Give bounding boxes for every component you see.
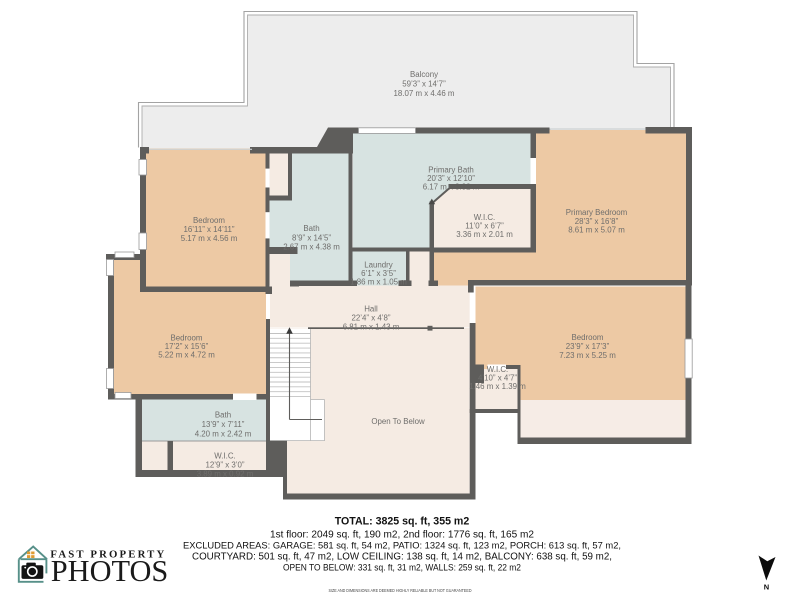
svg-text:59’3” x 14’7”: 59’3” x 14’7” — [402, 80, 446, 89]
svg-text:1.86 m x 1.05 m: 1.86 m x 1.05 m — [350, 278, 407, 287]
svg-text:8.61 m x 5.07 m: 8.61 m x 5.07 m — [568, 226, 625, 235]
svg-text:Bedroom: Bedroom — [571, 333, 603, 342]
svg-text:Bath: Bath — [303, 224, 319, 233]
svg-text:5.22 m x 4.72 m: 5.22 m x 4.72 m — [158, 351, 215, 360]
svg-text:SIZE AND DIMENSIONS ARE DEEMED: SIZE AND DIMENSIONS ARE DEEMED HIGHLY RE… — [329, 588, 472, 594]
svg-text:COURTYARD: 501 sq. ft, 47 m2,: COURTYARD: 501 sq. ft, 47 m2, LOW CEILIN… — [192, 552, 612, 563]
svg-text:OPEN TO BELOW: 331 sq. ft, 31: OPEN TO BELOW: 331 sq. ft, 31 m2, WALLS:… — [283, 563, 521, 573]
svg-text:13’9” x 7’11”: 13’9” x 7’11” — [202, 420, 245, 429]
svg-text:7.23 m x 5.25 m: 7.23 m x 5.25 m — [559, 351, 616, 360]
svg-text:4.20 m x 2.42 m: 4.20 m x 2.42 m — [195, 430, 252, 439]
svg-text:W.I.C.: W.I.C. — [214, 452, 235, 461]
svg-text:16’11” x 14’11”: 16’11” x 14’11” — [183, 225, 234, 234]
svg-text:N: N — [764, 583, 769, 592]
svg-text:Open To Below: Open To Below — [371, 417, 425, 426]
svg-text:Bedroom: Bedroom — [193, 216, 225, 225]
svg-text:TOTAL: 3825 sq. ft, 355 m2: TOTAL: 3825 sq. ft, 355 m2 — [335, 516, 470, 528]
svg-text:3.89 m x 0.92 m: 3.89 m x 0.92 m — [197, 470, 254, 479]
svg-text:Hall: Hall — [364, 305, 378, 314]
svg-text:EXCLUDED AREAS: GARAGE: 581 sq: EXCLUDED AREAS: GARAGE: 581 sq. ft, 54 m… — [183, 539, 621, 550]
svg-text:8’9” x 14’5”: 8’9” x 14’5” — [292, 233, 331, 242]
svg-text:Primary Bedroom: Primary Bedroom — [566, 208, 628, 217]
svg-text:Balcony: Balcony — [410, 70, 438, 79]
svg-text:22’4” x 4’8”: 22’4” x 4’8” — [351, 314, 390, 323]
svg-text:2.67 m x 4.38 m: 2.67 m x 4.38 m — [283, 243, 340, 252]
svg-text:23’9” x 17’3”: 23’9” x 17’3” — [566, 342, 610, 351]
svg-text:18.07 m x 4.46 m: 18.07 m x 4.46 m — [394, 89, 455, 98]
svg-text:5.17 m x 4.56 m: 5.17 m x 4.56 m — [181, 234, 238, 243]
svg-text:12’9” x 3’0”: 12’9” x 3’0” — [205, 461, 244, 470]
svg-text:6.81 m x 1.43 m: 6.81 m x 1.43 m — [343, 323, 400, 332]
svg-text:PHOTOS: PHOTOS — [51, 553, 169, 588]
svg-text:1.46 m x 1.39 m: 1.46 m x 1.39 m — [469, 382, 526, 391]
svg-text:3.36 m x 2.01 m: 3.36 m x 2.01 m — [456, 230, 513, 239]
svg-text:Bath: Bath — [215, 411, 231, 420]
